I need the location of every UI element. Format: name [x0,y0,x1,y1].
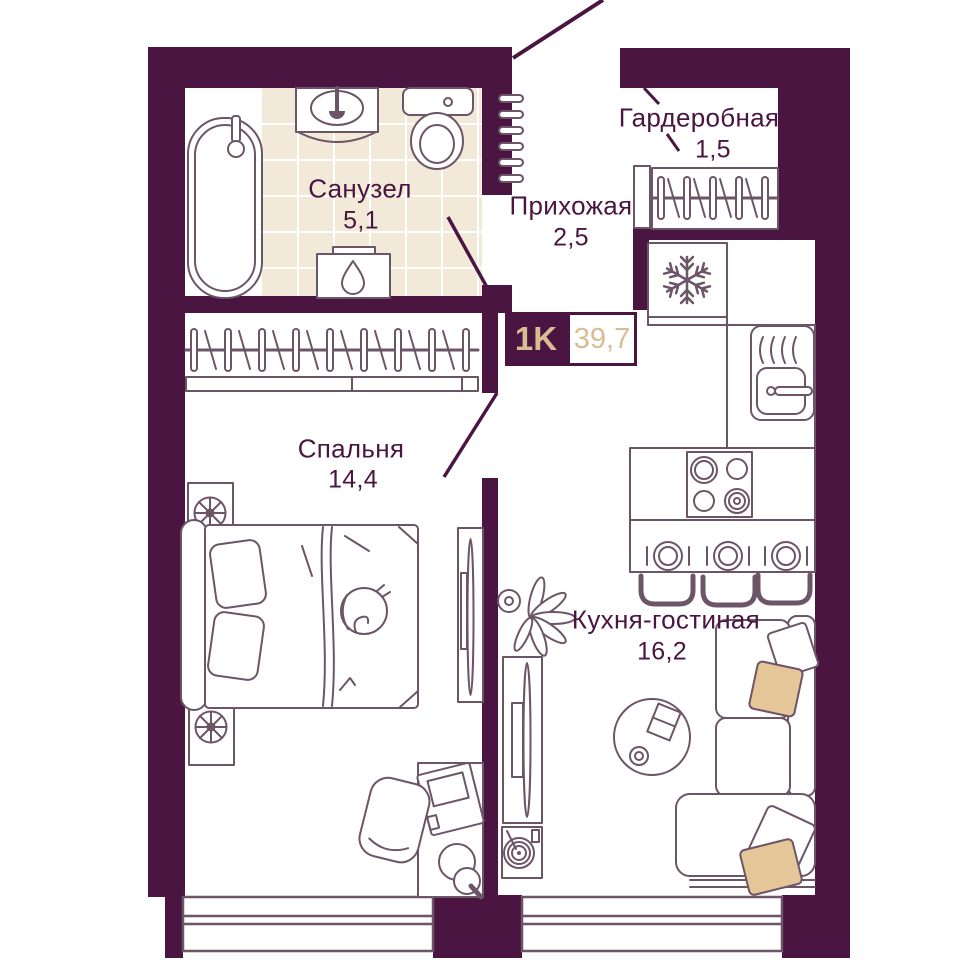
window-pier-left [165,897,183,958]
bed-pillow [207,611,265,681]
bed [181,520,418,710]
wall-divider-upper [482,313,498,393]
room-area-bathroom: 5,1 [343,207,379,236]
apartment-type-badge: 1K 39,7 [505,312,637,366]
room-area-hallway: 2,5 [553,224,589,253]
room-label-wardrobe: Гардеробная [619,103,780,134]
floor-plan-canvas [0,0,960,960]
wall-left [148,47,185,897]
desk [356,762,485,897]
record-player [502,827,542,878]
bedroom-door-swing [444,393,497,477]
coffee-table [614,699,690,775]
window-pier-right [782,895,850,958]
wardrobe-rail [634,166,778,229]
fan-icon [196,712,227,743]
wall-divider-lower [482,478,498,897]
room-label-kitchen-living: Кухня-гостиная [572,605,760,636]
wall-right [815,240,850,958]
kitchen-sink [751,326,814,420]
apartment-type-label: 1K [505,312,567,366]
wall-fridge-nook [633,240,649,310]
entrance-door-swing [513,0,603,58]
bed-pillow [209,539,267,609]
plant-icon [498,576,575,658]
room-area-kitchen-living: 16,2 [637,638,687,667]
tv-unit [503,657,542,823]
fridge [648,243,727,325]
bathtub [188,116,262,298]
floor-plan: Санузел 5,1 Прихожая 2,5 Гардеробная 1,5… [0,0,960,960]
room-label-bedroom: Спальня [298,434,405,465]
apartment-total-area: 39,7 [567,312,637,366]
sofa-pillow-tan [749,661,804,718]
wall-shaft [778,88,850,240]
wall-top-right [620,48,850,88]
room-area-wardrobe: 1,5 [695,136,731,165]
room-label-bathroom: Санузел [308,174,411,205]
window-pier-center [433,895,522,958]
bed-headboard [181,520,207,710]
bedroom-tv-dresser [458,528,483,702]
bar-counter [630,520,815,605]
room-area-bedroom: 14,4 [328,466,378,495]
stove [687,452,752,517]
water-heater [317,247,390,298]
bedroom-closet-rail [186,329,478,391]
sofa [676,616,819,896]
wall-top-left [148,47,512,88]
wardrobe-area-leader [667,134,679,151]
bar-stools [641,575,810,605]
room-label-hallway: Прихожая [510,191,633,222]
